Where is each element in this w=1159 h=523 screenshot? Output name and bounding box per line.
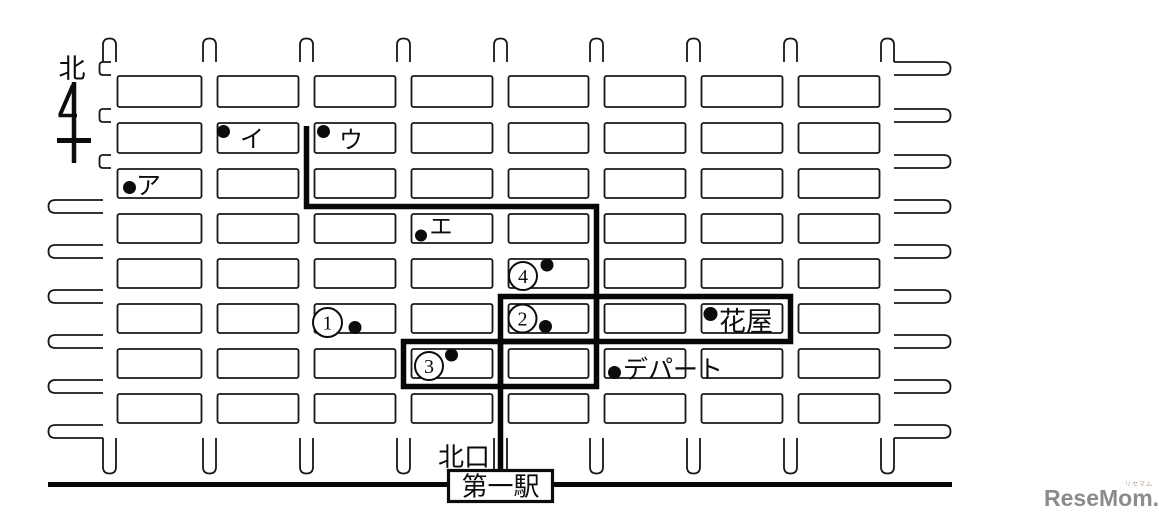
street-map-svg: 北 ア イ ウ エ 1 (0, 0, 1159, 523)
city-block (412, 76, 493, 107)
north-compass: 北 (57, 54, 91, 163)
marker-3-label: 3 (424, 356, 434, 378)
grid-line (49, 335, 104, 348)
city-block (315, 169, 396, 198)
city-block (799, 304, 880, 333)
watermark-ruby: リセマム (1125, 482, 1153, 488)
station-label: 第一駅 (461, 473, 539, 502)
flower-shop-label: 花屋 (719, 307, 773, 337)
marker-e-dot (415, 230, 427, 242)
city-block (702, 214, 783, 243)
city-block (509, 394, 589, 423)
grid-line (397, 39, 410, 63)
grid-line (687, 438, 700, 474)
grid-line (894, 245, 951, 258)
city-block (509, 123, 589, 153)
grid-line (300, 39, 313, 63)
marker-1-label: 1 (323, 313, 333, 335)
grid-line (894, 335, 951, 348)
city-block (799, 259, 880, 288)
city-block (605, 169, 686, 198)
city-block (412, 304, 493, 333)
city-block (412, 259, 493, 288)
city-block (799, 214, 880, 243)
flower-shop-dot (704, 307, 718, 321)
marker-a-dot (123, 181, 136, 194)
city-block (702, 169, 783, 198)
grid-line (590, 438, 603, 474)
grid-line (881, 39, 894, 63)
city-block (605, 76, 686, 107)
watermark: リセマム ReseMom. (1044, 487, 1159, 510)
grid-line (49, 425, 104, 438)
marker-2-label: 2 (518, 309, 528, 331)
marker-4-dot (541, 259, 554, 272)
city-block (118, 349, 202, 378)
city-block (605, 304, 686, 333)
marker-i-dot (217, 125, 230, 138)
department-store: デパート (608, 356, 723, 384)
watermark-text: ReseMom. (1044, 485, 1159, 511)
city-block (702, 76, 783, 107)
marker-u-label: ウ (339, 128, 363, 154)
city-block (315, 394, 396, 423)
marker-3-dot (445, 349, 458, 362)
grid-line (203, 39, 216, 63)
north-exit-label: 北口 (438, 443, 490, 472)
city-block (799, 169, 880, 198)
city-block (509, 349, 589, 378)
city-block (118, 123, 202, 153)
city-block (799, 349, 880, 378)
city-block (702, 394, 783, 423)
city-block (118, 214, 202, 243)
city-block (118, 259, 202, 288)
grid-line (784, 39, 797, 63)
grid-line (203, 438, 216, 474)
city-block (799, 76, 880, 107)
north-label: 北 (59, 54, 86, 84)
city-block (218, 304, 299, 333)
city-block (799, 394, 880, 423)
city-block (118, 304, 202, 333)
city-block (315, 259, 396, 288)
grid-line (49, 245, 104, 258)
grid-line (103, 39, 116, 63)
city-block (605, 214, 686, 243)
map-figure: 北 ア イ ウ エ 1 (0, 0, 1159, 523)
department-store-dot (608, 366, 621, 379)
grid-line (784, 438, 797, 474)
grid-line (103, 438, 116, 474)
marker-a-label: ア (136, 173, 161, 200)
marker-2-dot (539, 320, 552, 333)
city-block (605, 394, 686, 423)
city-block (702, 259, 783, 288)
grid-line (300, 438, 313, 474)
grid-line (49, 380, 104, 393)
marker-i-label: イ (240, 127, 264, 153)
city-block (218, 76, 299, 107)
city-block (218, 394, 299, 423)
grid-line (687, 39, 700, 63)
grid-line (494, 39, 507, 63)
marker-e-label: エ (430, 214, 453, 239)
city-block (412, 394, 493, 423)
grid-line (894, 380, 951, 393)
grid-line (100, 109, 112, 122)
marker-1-dot (349, 321, 362, 334)
grid-line (590, 39, 603, 63)
grid-line (894, 155, 951, 168)
city-block (702, 123, 783, 153)
grid-line (397, 438, 410, 474)
city-block (315, 349, 396, 378)
city-block (799, 123, 880, 153)
city-block (509, 169, 589, 198)
marker-u-dot (317, 125, 330, 138)
city-block (218, 349, 299, 378)
department-store-label: デパート (623, 356, 723, 384)
city-block (218, 169, 299, 198)
city-block (315, 76, 396, 107)
grid-line (894, 425, 951, 438)
city-block (315, 214, 396, 243)
grid-line (49, 290, 104, 303)
grid-line (100, 155, 112, 168)
grid-line (894, 62, 951, 75)
city-block (605, 259, 686, 288)
city-block (412, 169, 493, 198)
grid-line (894, 290, 951, 303)
grid-line (100, 62, 112, 75)
north-arrow-icon (57, 82, 91, 163)
grid-line (49, 200, 104, 213)
city-block (118, 394, 202, 423)
city-block (509, 214, 589, 243)
city-block (412, 123, 493, 153)
city-block (218, 214, 299, 243)
station: 第一駅 (449, 471, 553, 502)
marker-4-label: 4 (518, 266, 528, 288)
city-block (118, 76, 202, 107)
grid-line (894, 109, 951, 122)
city-block (509, 76, 589, 107)
grid-line (894, 200, 951, 213)
city-block (605, 123, 686, 153)
grid-line (881, 438, 894, 474)
city-block (218, 259, 299, 288)
